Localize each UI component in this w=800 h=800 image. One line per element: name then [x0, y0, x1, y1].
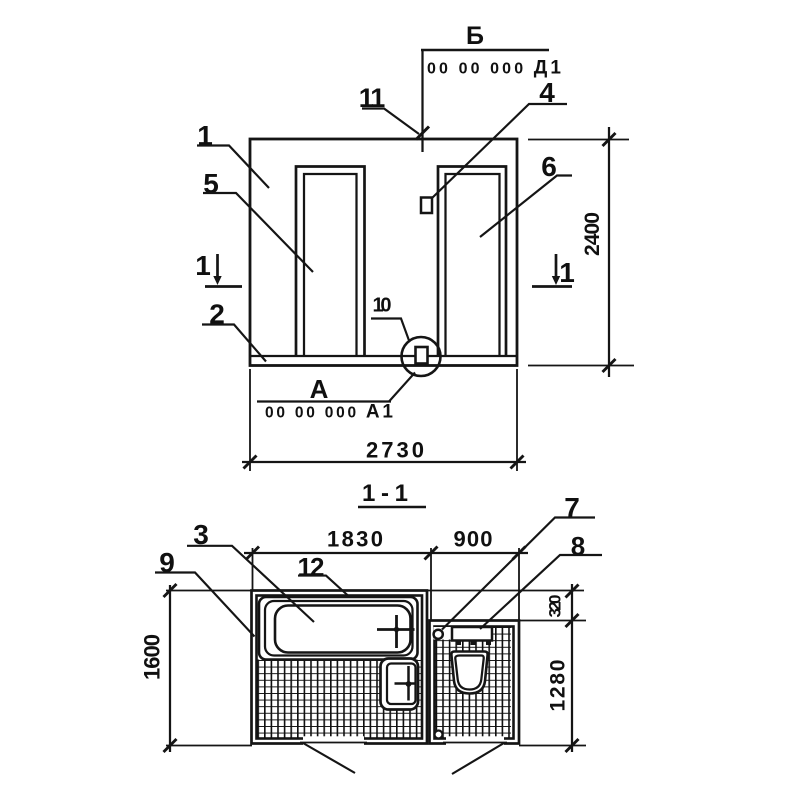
- svg-text:1280: 1280: [547, 660, 570, 712]
- svg-text:320: 320: [546, 595, 565, 618]
- svg-text:1: 1: [559, 257, 575, 288]
- svg-text:10: 10: [373, 295, 392, 317]
- svg-text:00 00 000 А1: 00 00 000 А1: [265, 402, 393, 423]
- svg-text:1600: 1600: [140, 634, 165, 680]
- svg-text:2400: 2400: [581, 212, 604, 256]
- svg-text:1: 1: [195, 250, 211, 281]
- svg-text:00 00 000 Д1: 00 00 000 Д1: [427, 58, 561, 79]
- svg-text:8: 8: [571, 531, 585, 561]
- svg-text:12: 12: [298, 552, 324, 582]
- svg-text:900: 900: [454, 527, 493, 552]
- svg-text:1-1: 1-1: [362, 480, 408, 507]
- svg-text:Б: Б: [466, 22, 484, 50]
- svg-text:5: 5: [203, 168, 219, 199]
- svg-text:А: А: [310, 374, 329, 404]
